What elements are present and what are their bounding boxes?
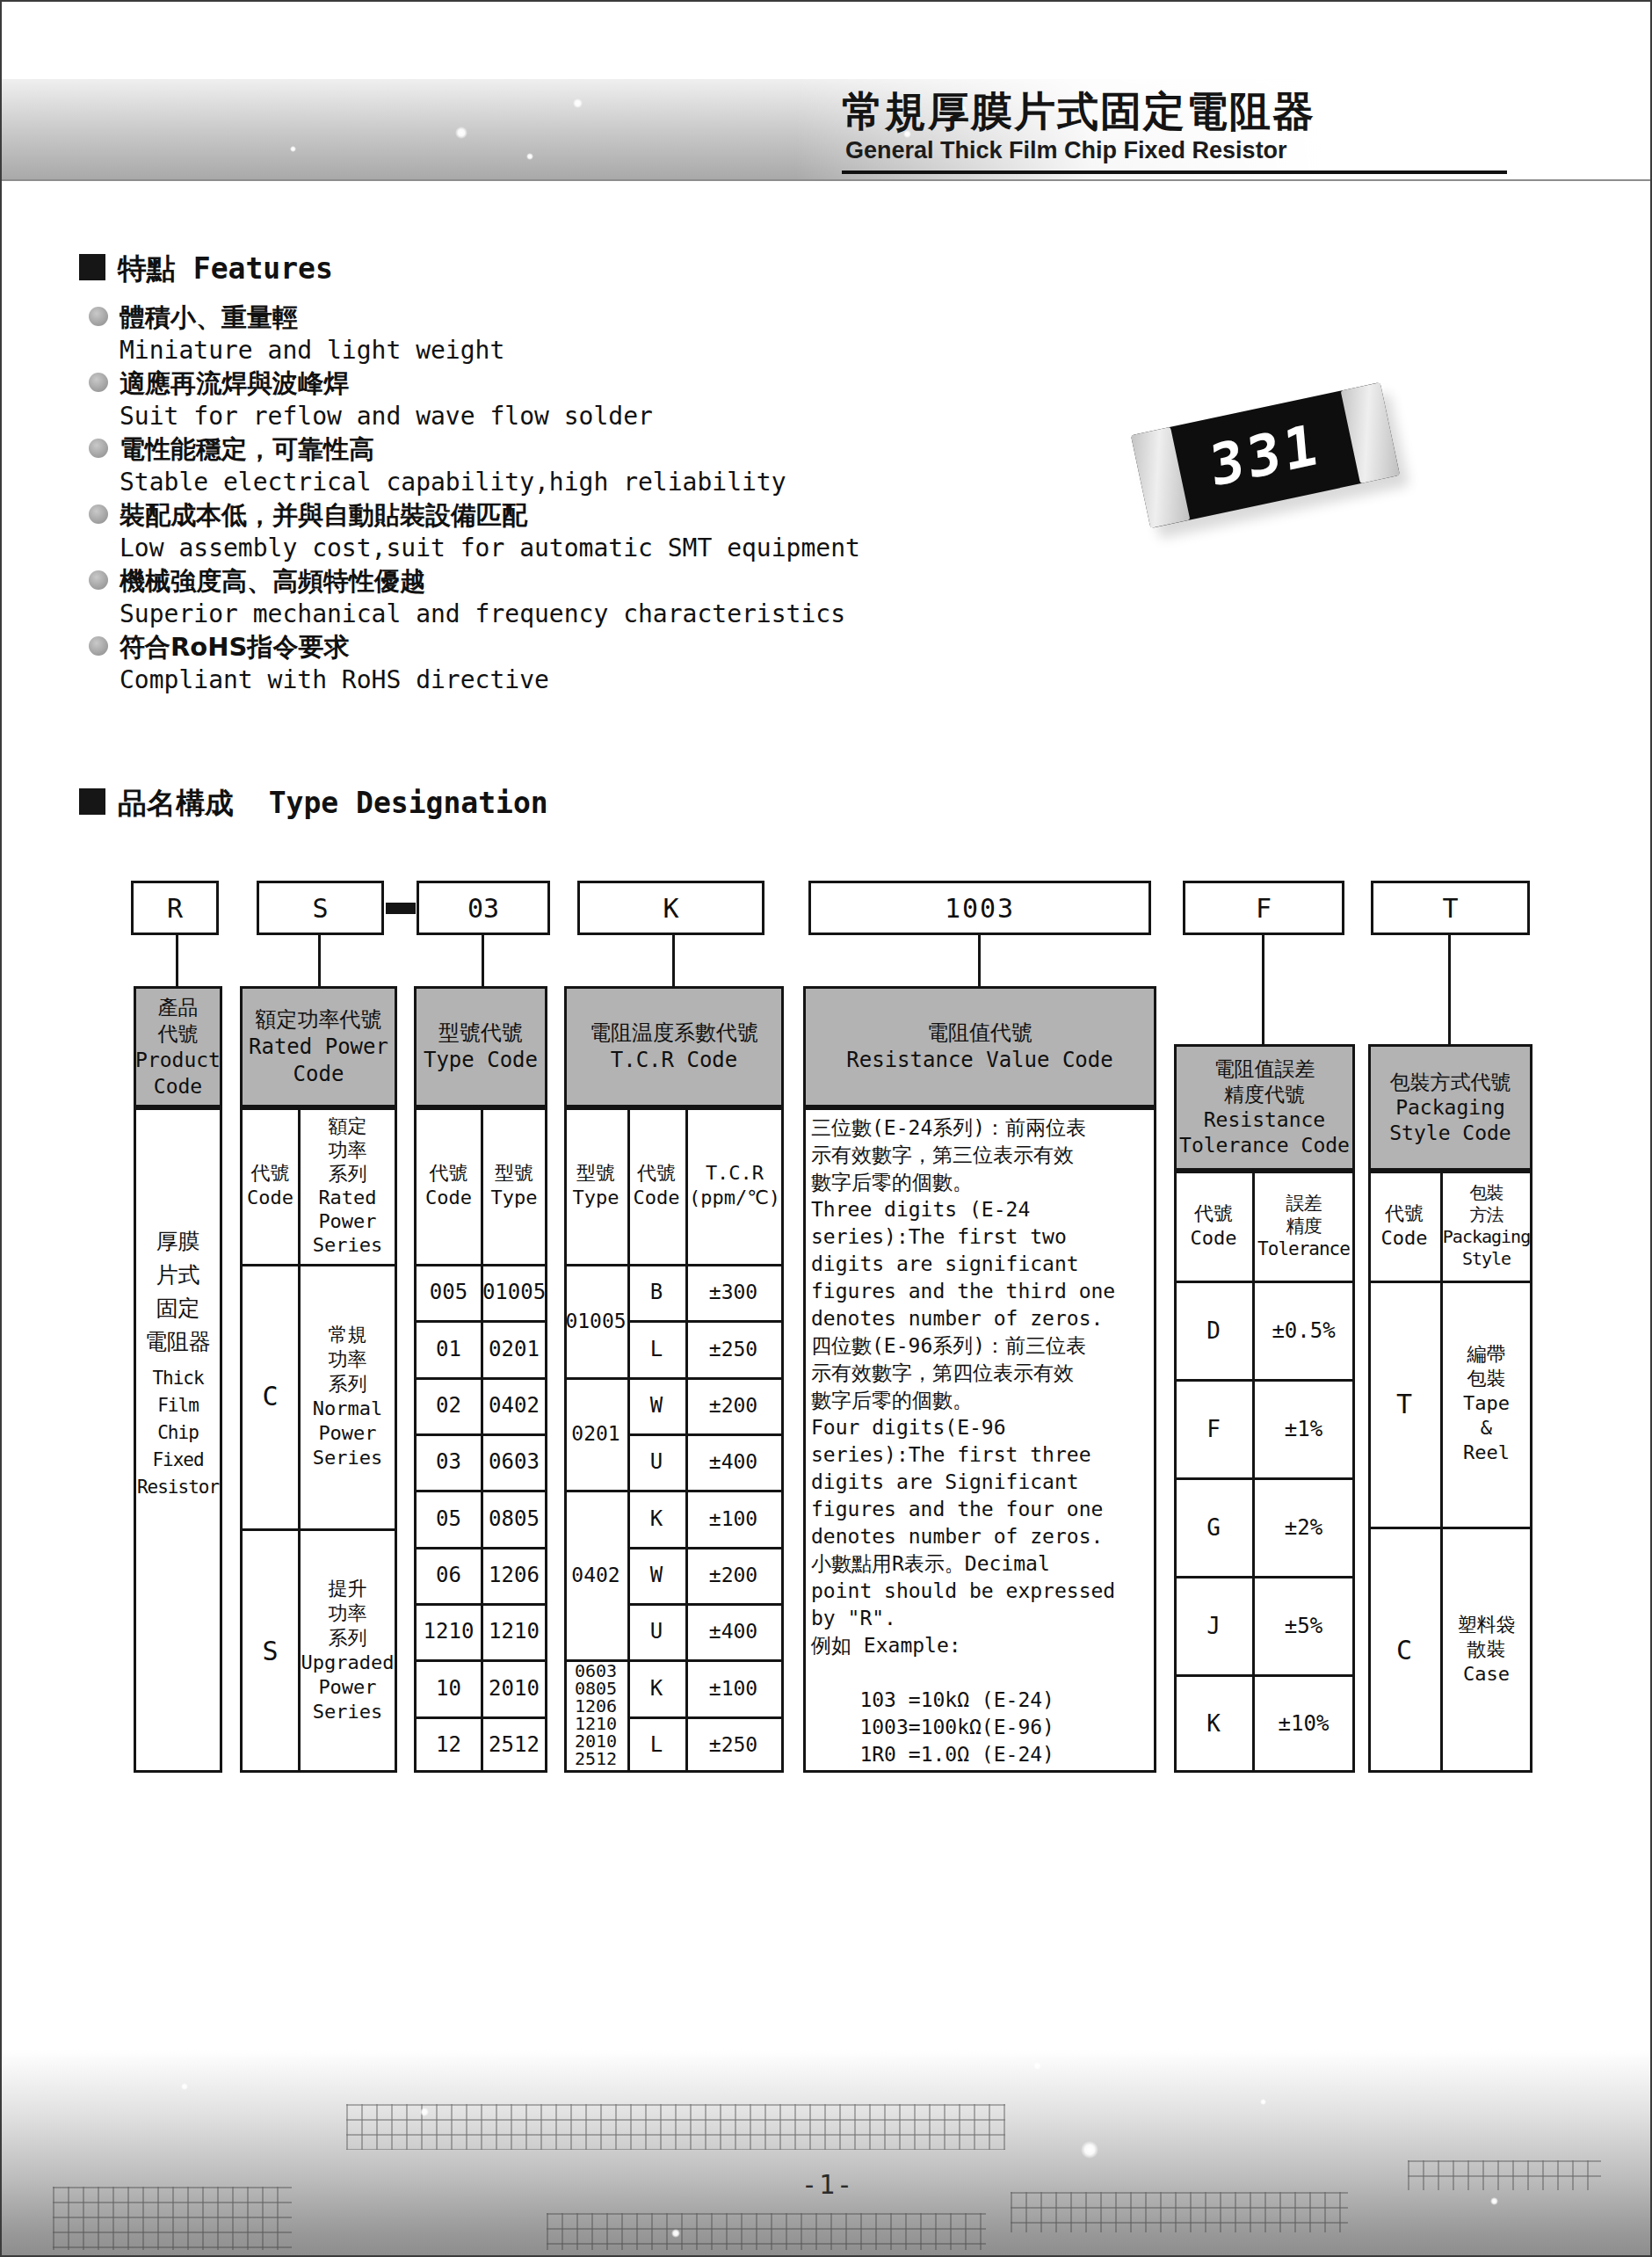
tcr-code-cell: B: [630, 1266, 683, 1317]
feature-item-en: Compliant with RoHS directive: [120, 665, 549, 694]
sparkle-decoration: [1033, 2062, 1041, 2070]
feature-item-en: Stable electrical capability,high reliab…: [120, 468, 786, 497]
type-code-cell: 01: [417, 1323, 481, 1375]
type-code-cell: 06: [417, 1549, 481, 1600]
tcr-value-cell: ±100: [688, 1492, 779, 1544]
tolerance-column-header: 電阻值誤差 精度代號 Resistance Tolerance Code: [1174, 1044, 1355, 1171]
pixel-decoration: [346, 2104, 1005, 2150]
code-box-power: S: [257, 881, 384, 935]
packaging-subheader-style: 包裝 方法 Packaging Style: [1443, 1173, 1530, 1279]
packaging-code-cell: C: [1371, 1529, 1438, 1770]
tcr-type-group: 0402: [567, 1492, 625, 1657]
header-band: [2, 79, 1652, 181]
bullet-icon: [89, 307, 108, 326]
tcr-code-cell: K: [630, 1492, 683, 1544]
sparkle-decoration: [455, 127, 467, 139]
type-type-cell: 1210: [483, 1606, 545, 1657]
feature-item-zh: 裝配成本低，并與自動貼裝設備匹配: [120, 498, 527, 533]
packaging-code-cell: T: [1371, 1283, 1438, 1524]
tolerance-value-cell: ±0.5%: [1255, 1283, 1352, 1377]
tolerance-value-cell: ±10%: [1255, 1677, 1352, 1770]
bullet-icon: [89, 636, 108, 656]
type-subheader-code: 代號 Code: [417, 1110, 481, 1261]
tcr-value-cell: ±200: [688, 1380, 779, 1431]
feature-item-zh: 電性能穩定，可靠性高: [120, 432, 374, 468]
power-subheader-code: 代號 Code: [243, 1110, 298, 1261]
page-subtitle: General Thick Film Chip Fixed Resistor: [845, 137, 1287, 164]
tcr-subheader-code: 代號 Code: [630, 1110, 683, 1261]
type-type-cell: 0603: [483, 1436, 545, 1487]
type-type-cell: 2512: [483, 1719, 545, 1770]
feature-item-zh: 符合RoHS指令要求: [120, 630, 349, 665]
type-type-cell: 0402: [483, 1380, 545, 1431]
sparkle-decoration: [671, 2229, 680, 2238]
tcr-code-cell: W: [630, 1549, 683, 1600]
sparkle-decoration: [526, 153, 533, 160]
connector-line: [318, 935, 321, 986]
tcr-code-cell: L: [630, 1719, 683, 1770]
sparkle-decoration: [181, 2083, 188, 2090]
type-code-cell: 12: [417, 1719, 481, 1770]
code-box-value: 1003: [808, 881, 1151, 935]
tolerance-code-cell: J: [1177, 1578, 1250, 1673]
connector-line: [1262, 935, 1264, 1044]
tcr-type-group: 0603 0805 1206 1210 2010 2512: [567, 1662, 625, 1767]
tolerance-subheader-code: 代號 Code: [1177, 1173, 1250, 1279]
power-code-cell: C: [243, 1266, 298, 1526]
code-box-product: R: [131, 881, 219, 935]
connector-line: [978, 935, 981, 986]
type-code-cell: 05: [417, 1492, 481, 1544]
tcr-value-cell: ±400: [688, 1436, 779, 1487]
datasheet-page: 常規厚膜片式固定電阻器 General Thick Film Chip Fixe…: [0, 0, 1652, 2257]
tcr-subheader-tcr: T.C.R (ppm/℃): [688, 1110, 781, 1261]
product-body-zh: 厚膜 片式 固定 電阻器: [136, 1222, 220, 1362]
power-column-header: 額定功率代號 Rated Power Code: [240, 986, 397, 1107]
type-code-cell: 10: [417, 1662, 481, 1714]
product-column-header: 產品 代號 Product Code: [134, 986, 222, 1107]
feature-item-en: Suit for reflow and wave flow solder: [120, 402, 653, 431]
section-marker-icon: [79, 254, 105, 280]
tcr-value-cell: ±100: [688, 1662, 779, 1714]
type-code-cell: 1210: [417, 1606, 481, 1657]
value-description: 三位數(E-24系列)：前兩位表 示有效數字，第三位表示有效 數字后零的個數。 …: [811, 1114, 1150, 1767]
type-type-cell: 1206: [483, 1549, 545, 1600]
separator-dash: [386, 903, 416, 914]
feature-item-en: Low assembly cost,suit for automatic SMT…: [120, 533, 860, 562]
bullet-icon: [89, 504, 108, 524]
features-heading: 特點 Features: [118, 250, 333, 289]
type-subheader-type: 型號 Type: [483, 1110, 545, 1261]
tcr-value-cell: ±400: [688, 1606, 779, 1657]
feature-item-en: Superior mechanical and frequency charac…: [120, 599, 845, 628]
value-column-header: 電阻值代號 Resistance Value Code: [803, 986, 1156, 1107]
code-box-type: 03: [417, 881, 550, 935]
feature-item-en: Miniature and light weight: [120, 336, 504, 365]
page-number: -1-: [2, 2169, 1652, 2200]
tcr-value-cell: ±200: [688, 1549, 779, 1600]
tolerance-value-cell: ±5%: [1255, 1578, 1352, 1673]
tolerance-subheader-tol: 誤差 精度 Tolerance: [1255, 1173, 1352, 1279]
tcr-type-group: 01005: [567, 1266, 625, 1375]
tolerance-code-cell: F: [1177, 1382, 1250, 1476]
tcr-code-cell: U: [630, 1606, 683, 1657]
tcr-code-cell: U: [630, 1436, 683, 1487]
code-box-packaging: T: [1371, 881, 1530, 935]
type-type-cell: 2010: [483, 1662, 545, 1714]
feature-item-zh: 體積小、重量輕: [120, 301, 298, 336]
power-subheader-series: 額定 功率 系列 Rated Power Series: [301, 1110, 395, 1261]
tcr-value-cell: ±300: [688, 1266, 779, 1317]
tcr-value-cell: ±250: [688, 1323, 779, 1375]
connector-line: [672, 935, 675, 986]
tcr-code-cell: W: [630, 1380, 683, 1431]
code-box-tcr: K: [577, 881, 764, 935]
type-column-header: 型號代號 Type Code: [414, 986, 547, 1107]
connector-line: [482, 935, 484, 986]
power-series-cell: 提升 功率 系列 Upgraded Power Series: [301, 1531, 395, 1770]
power-code-cell: S: [243, 1531, 298, 1770]
type-type-cell: 0805: [483, 1492, 545, 1544]
connector-line: [1448, 935, 1451, 1044]
chip-resistor-image: 331: [1131, 382, 1400, 528]
chip-marking: 331: [1176, 389, 1354, 521]
product-body-en: Thick Film Chip Fixed Resistor: [136, 1362, 220, 1503]
power-series-cell: 常規 功率 系列 Normal Power Series: [301, 1266, 395, 1526]
tolerance-code-cell: D: [1177, 1283, 1250, 1377]
sparkle-decoration: [1260, 2099, 1266, 2105]
tolerance-value-cell: ±2%: [1255, 1480, 1352, 1574]
tcr-column-header: 電阻温度系數代號 T.C.R Code: [564, 986, 784, 1107]
page-title: 常規厚膜片式固定電阻器: [842, 84, 1315, 140]
section-marker-icon: [79, 788, 105, 815]
code-box-tolerance: F: [1183, 881, 1344, 935]
tcr-code-cell: K: [630, 1662, 683, 1714]
packaging-subheader-code: 代號 Code: [1371, 1173, 1438, 1279]
type-code-cell: 03: [417, 1436, 481, 1487]
type-designation-heading: 品名構成 Type Designation: [118, 784, 548, 824]
bullet-icon: [89, 439, 108, 458]
packaging-column-header: 包裝方式代號 Packaging Style Code: [1368, 1044, 1532, 1171]
connector-line: [176, 935, 178, 986]
title-underline: [842, 171, 1507, 174]
packaging-style-cell: 塑料袋 散裝 Case: [1443, 1529, 1530, 1770]
sparkle-decoration: [573, 98, 583, 108]
tcr-subheader-type: 型號 Type: [567, 1110, 625, 1261]
sparkle-decoration: [420, 2108, 429, 2116]
feature-item-zh: 機械強度高、高頻特性優越: [120, 564, 425, 599]
tolerance-value-cell: ±1%: [1255, 1382, 1352, 1476]
type-code-cell: 02: [417, 1380, 481, 1431]
sparkle-decoration: [1081, 2141, 1098, 2159]
bullet-icon: [89, 570, 108, 590]
tolerance-code-cell: G: [1177, 1480, 1250, 1574]
tcr-type-group: 0201: [567, 1380, 625, 1487]
type-code-cell: 005: [417, 1266, 481, 1317]
packaging-style-cell: 編帶 包裝 Tape & Reel: [1443, 1283, 1530, 1524]
tcr-value-cell: ±250: [688, 1719, 779, 1770]
feature-item-zh: 適應再流焊與波峰焊: [120, 366, 349, 402]
bullet-icon: [89, 373, 108, 392]
pixel-decoration: [547, 2213, 986, 2250]
tcr-code-cell: L: [630, 1323, 683, 1375]
type-type-cell: 0201: [483, 1323, 545, 1375]
tolerance-code-cell: K: [1177, 1677, 1250, 1770]
sparkle-decoration: [290, 146, 296, 152]
type-type-cell: 01005: [483, 1266, 545, 1317]
